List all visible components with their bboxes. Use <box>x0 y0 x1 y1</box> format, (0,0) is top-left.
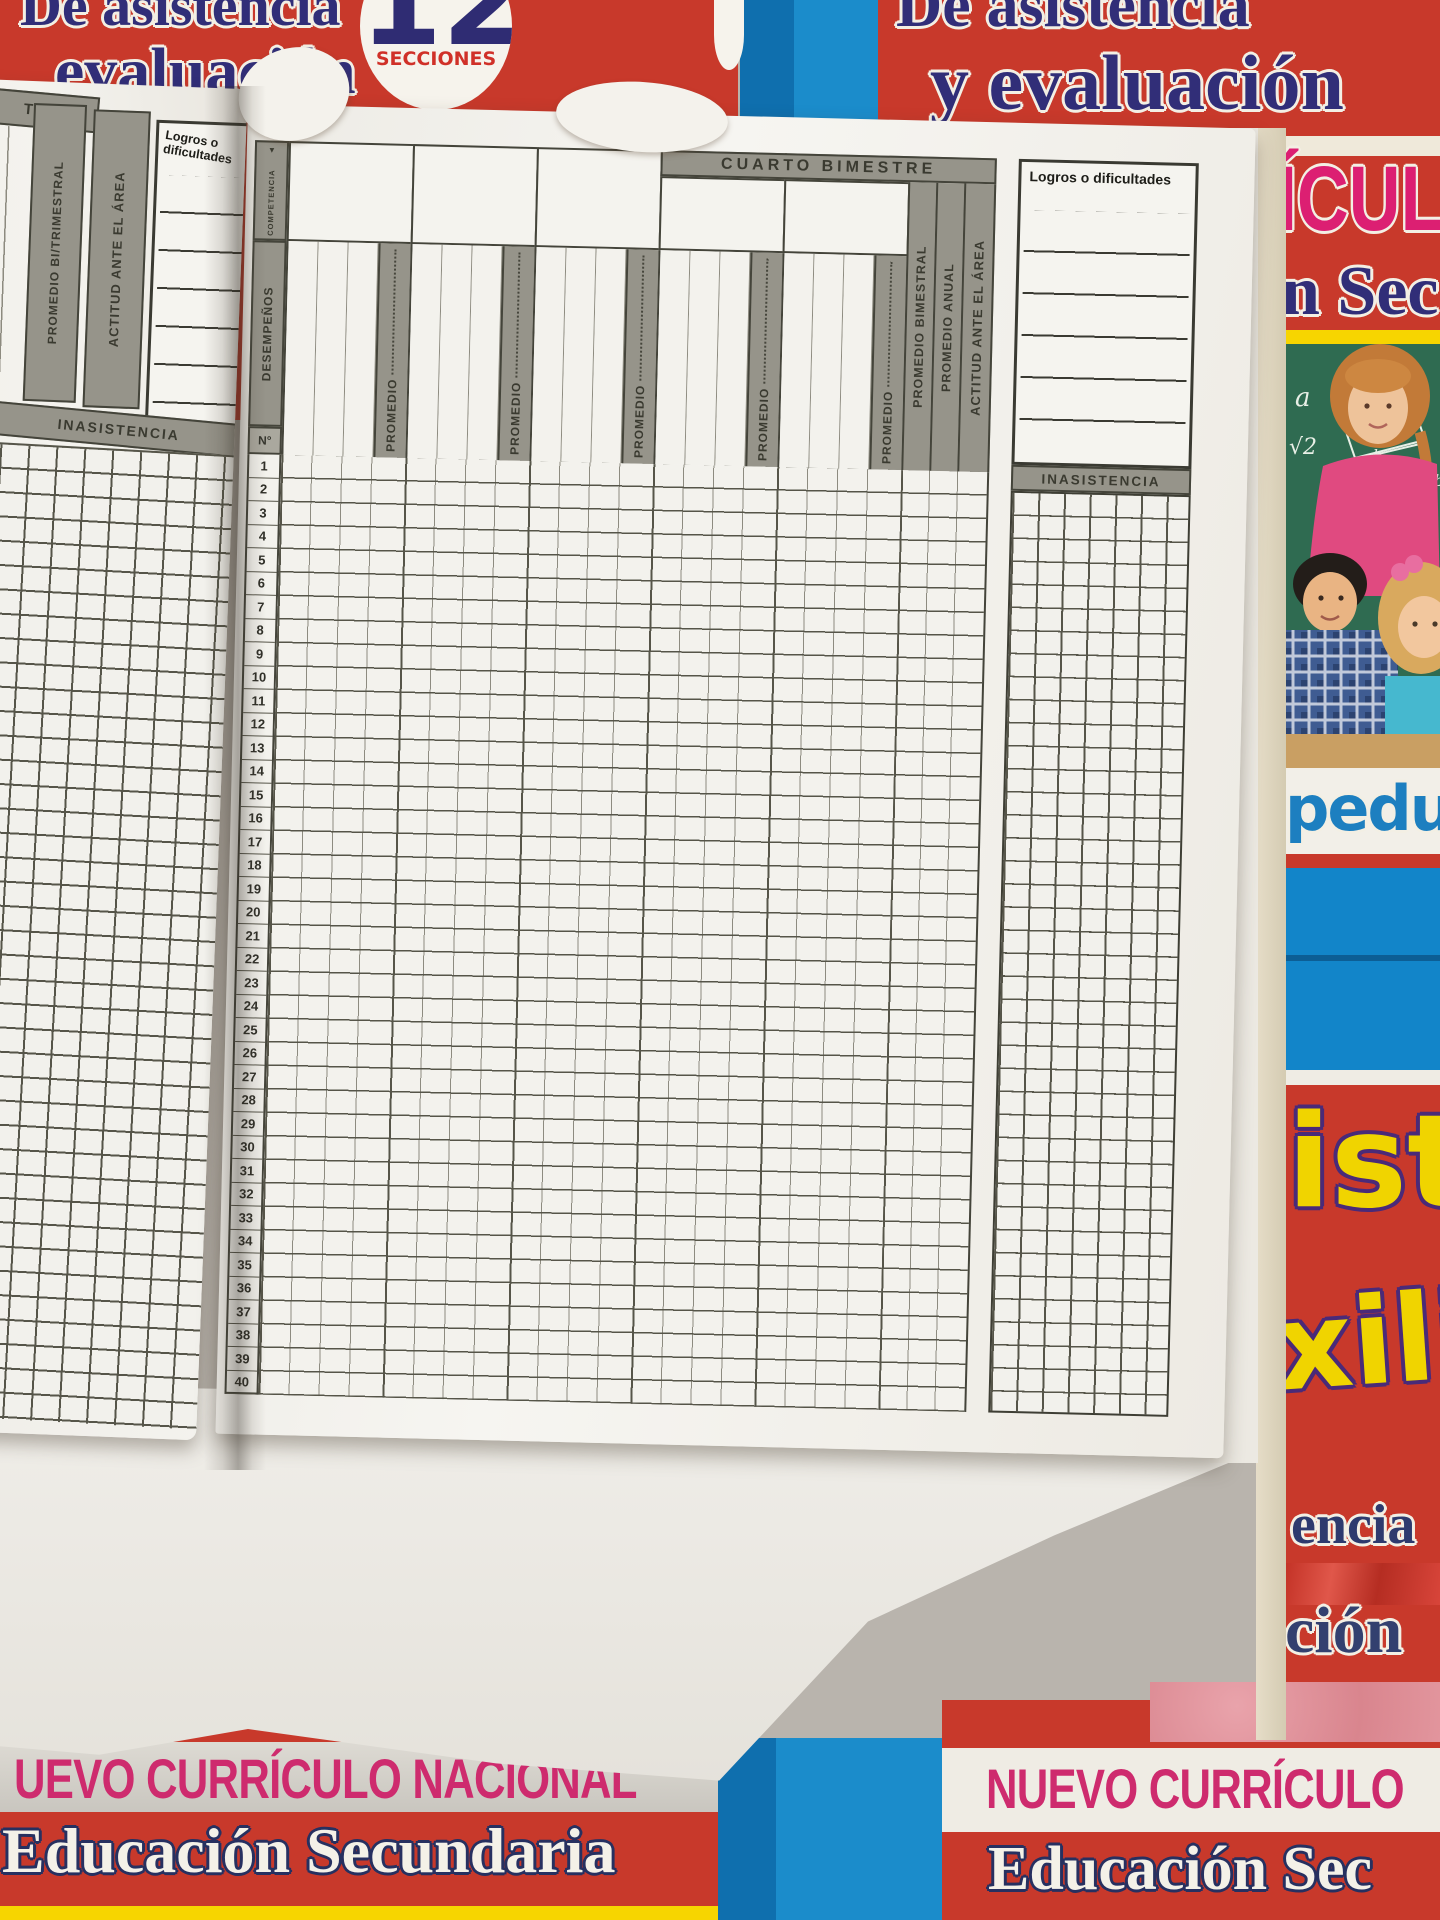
curriculo-fragment-block: ÍCULO <box>1285 154 1440 246</box>
chalk-mark: √2 <box>1289 435 1317 460</box>
promedio-column: PROMEDIO <box>745 252 782 467</box>
competency-group: PROMEDIO <box>529 147 661 464</box>
educacion-secundaria-title: Educación Sec <box>988 1834 1372 1905</box>
red-poster: ist xili encia ción <box>1285 1085 1440 1688</box>
girl1-fringe <box>1345 359 1411 393</box>
promedio-bitrimestral-column: PROMEDIO BI/TRIMESTRAL <box>23 103 87 403</box>
logros-label: Logros o dificultades <box>1021 162 1195 188</box>
girl1-eye <box>1386 403 1391 408</box>
boy-eye <box>1338 595 1343 600</box>
xili-fragment: xili <box>1285 1276 1440 1410</box>
girl2-eye <box>1412 621 1417 626</box>
logo-band: pedu <box>1285 768 1440 854</box>
yellow-stripe <box>1285 330 1440 344</box>
promedio-column: PROMEDIO <box>621 249 658 464</box>
book-spine-top <box>740 0 882 130</box>
cover-edge-sliver <box>1285 1070 1440 1085</box>
register-right-page: ▼ COMPETENCIA DESEMPEÑOS N° PROMEDIO PRO… <box>216 104 1256 1458</box>
scores-grid <box>258 455 901 1410</box>
cion-fragment: ción <box>1285 1593 1402 1669</box>
logros-box: Logros o dificultades <box>1011 159 1198 469</box>
competency-group: PROMEDIO <box>405 144 537 461</box>
white-band: NUEVO CURRÍCULO <box>942 1748 1440 1832</box>
promedio-column: PROMEDIO <box>373 243 410 458</box>
notebook-gutter <box>204 86 266 1470</box>
curriculo-fragment: ÍCULO <box>1285 154 1440 244</box>
cover-right-stack: ÍCULO n Sec a √2 b m h a+b 2 <box>1285 128 1440 1740</box>
yellow-stripe <box>0 1906 725 1920</box>
badge-label: SECCIONES <box>360 48 512 70</box>
classroom-desk <box>1285 734 1440 768</box>
blue-panel-2 <box>1285 961 1440 1070</box>
promedio-column: PROMEDIO <box>869 255 906 470</box>
competency-writein-box <box>535 147 663 250</box>
cover-title-line2: y evaluación <box>930 38 1344 128</box>
red-sliver <box>1285 854 1440 868</box>
girl1-eye <box>1364 403 1369 408</box>
dotted-leader <box>763 259 768 384</box>
book-page-edges <box>1256 128 1286 1740</box>
dotted-leader <box>639 256 644 381</box>
logo-fragment: pedu <box>1285 772 1440 845</box>
logros-ruled-lines <box>1019 210 1191 462</box>
actitud-column: ACTITUD ANTE EL ÁREA <box>957 184 996 473</box>
competency-writein-box <box>659 176 787 253</box>
classroom-photo-art: a √2 b m h a+b 2 <box>1285 344 1440 768</box>
dotted-leader <box>391 250 396 375</box>
book-spine-bottom <box>718 1738 942 1920</box>
boy-face <box>1303 572 1357 632</box>
encia-fragment: encia <box>1291 1493 1415 1557</box>
competency-group: PROMEDIO <box>777 153 909 470</box>
classroom-photo: a √2 b m h a+b 2 <box>1285 344 1440 768</box>
inasistencia-grid <box>988 491 1190 1417</box>
competency-writein-box <box>783 179 911 256</box>
competency-writein-box <box>411 144 539 247</box>
cover-title-line1: De asistencia <box>896 0 1250 42</box>
competency-group: PROMEDIO <box>653 150 785 467</box>
second-badge-edge <box>714 0 744 70</box>
curriculo-title: NUEVO CURRÍCULO <box>986 1756 1404 1821</box>
dotted-leader <box>515 253 520 378</box>
educacion-secundaria-title: Educación Secundaria <box>2 1814 615 1888</box>
photo-scene: De asistencia evaluación 12 SECCIONES De… <box>0 0 1440 1920</box>
girl2-bow <box>1405 555 1423 573</box>
secundaria-fragment: n Sec <box>1285 252 1439 332</box>
ist-fragment: ist <box>1287 1099 1440 1227</box>
pink-marbled-block <box>1150 1682 1440 1742</box>
actitud-column: ACTITUD ANTE EL ÁREA <box>82 109 150 409</box>
blue-panel-1 <box>1285 868 1440 955</box>
competency-writein-box <box>287 141 415 244</box>
promedio-column: PROMEDIO <box>497 246 534 461</box>
competency-group: PROMEDIO <box>281 141 413 458</box>
chalk-mark: a <box>1295 383 1311 413</box>
dotted-leader <box>887 262 892 387</box>
competencia-arrow-icon: ▼ <box>268 145 276 154</box>
competencia-label: COMPETENCIA <box>265 154 276 235</box>
girl2-eye <box>1432 621 1437 626</box>
boy-eye <box>1318 595 1323 600</box>
